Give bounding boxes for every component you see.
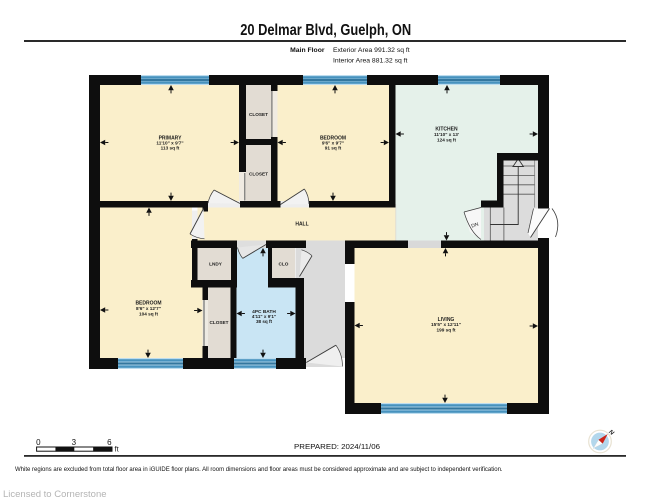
svg-text:38 sq ft: 38 sq ft	[256, 319, 273, 324]
svg-text:199 sq ft: 199 sq ft	[436, 327, 455, 332]
svg-text:LNDY: LNDY	[209, 262, 223, 267]
svg-text:HALL: HALL	[295, 222, 308, 228]
svg-text:Exterior Area 991.32 sq ft: Exterior Area 991.32 sq ft	[333, 47, 410, 54]
svg-text:CLOSET: CLOSET	[249, 172, 268, 177]
svg-text:Main Floor: Main Floor	[290, 47, 325, 54]
svg-text:91 sq ft: 91 sq ft	[325, 146, 342, 151]
svg-text:CLOSET: CLOSET	[249, 112, 268, 117]
svg-text:113 sq ft: 113 sq ft	[161, 146, 180, 151]
svg-text:CLOSET: CLOSET	[209, 320, 228, 325]
svg-text:CLO: CLO	[279, 262, 289, 267]
svg-text:6: 6	[107, 438, 112, 447]
svg-text:Interior Area 881.32 sq ft: Interior Area 881.32 sq ft	[333, 58, 408, 65]
svg-text:3: 3	[72, 438, 77, 447]
svg-text:White regions are excluded fro: White regions are excluded from total fl…	[15, 467, 503, 473]
svg-text:Licensed to Cornerstone: Licensed to Cornerstone	[3, 489, 107, 500]
svg-text:124 sq ft: 124 sq ft	[437, 138, 456, 143]
svg-text:8'6" x 12'7": 8'6" x 12'7"	[136, 306, 161, 311]
svg-text:20 Delmar Blvd, Guelph, ON: 20 Delmar Blvd, Guelph, ON	[240, 22, 411, 39]
svg-text:104 sq ft: 104 sq ft	[139, 311, 158, 316]
svg-text:PREPARED: 2024/11/06: PREPARED: 2024/11/06	[294, 442, 380, 451]
svg-text:11'10" x 13': 11'10" x 13'	[434, 132, 459, 137]
svg-text:0: 0	[36, 438, 41, 447]
